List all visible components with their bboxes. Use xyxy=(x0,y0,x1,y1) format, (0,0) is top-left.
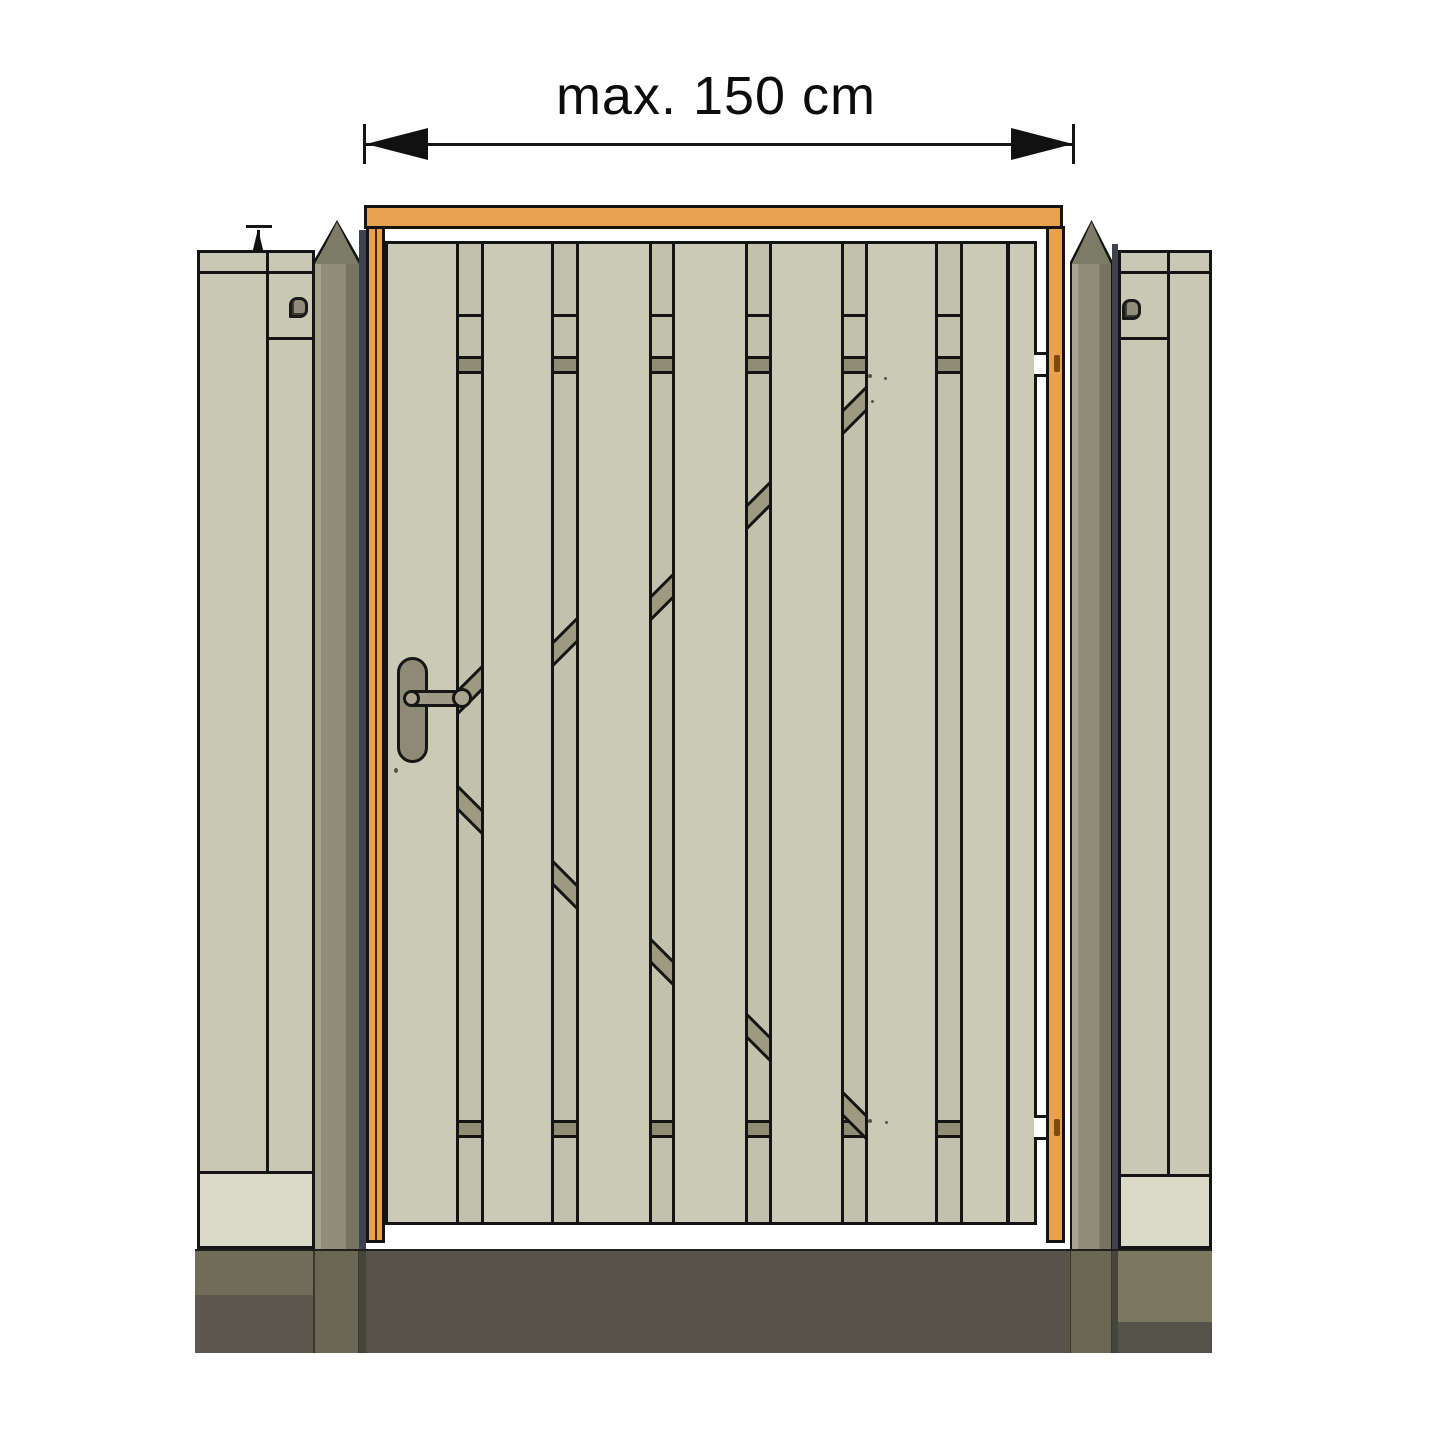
ground xyxy=(195,1249,1212,1353)
handle-lever-hub xyxy=(403,690,420,707)
back-rail-band xyxy=(938,356,960,374)
back-rail-band xyxy=(459,356,481,374)
handle-backplate xyxy=(397,657,428,763)
fence-left-top-rail-line xyxy=(200,271,312,274)
fence-right-board-divider xyxy=(1167,253,1170,1246)
back-rail-band xyxy=(554,356,576,374)
fence-left-bottom-board xyxy=(200,1174,312,1246)
back-plank-joint-line xyxy=(459,314,481,317)
post-left-cap xyxy=(315,222,359,264)
back-plank-joint-line xyxy=(938,314,960,317)
ground-left-bottom xyxy=(195,1295,313,1353)
gate-back-plank-gap xyxy=(649,244,675,1222)
diagonal-brace xyxy=(456,779,484,842)
gate-back-plank-gap xyxy=(935,244,963,1222)
gate-plank xyxy=(868,244,935,1222)
post-right-body xyxy=(1072,222,1111,1249)
fence-right-top-rail-line xyxy=(1121,271,1209,274)
width-dimension-line xyxy=(366,143,1073,146)
diagonal-brace xyxy=(841,379,868,442)
back-plank-joint-line xyxy=(844,314,865,317)
width-dimension-arrowhead-right xyxy=(1011,128,1073,160)
fence-right-hook-icon xyxy=(1122,299,1141,320)
back-rail-band xyxy=(652,356,672,374)
screw-dot xyxy=(868,1119,872,1123)
hinge-upper-bracket xyxy=(1034,352,1046,377)
ground-left-top xyxy=(195,1251,313,1295)
post-left-body xyxy=(315,222,359,1249)
back-rail-band xyxy=(748,356,769,374)
hinge-upper-pin xyxy=(1054,355,1060,372)
ground-center xyxy=(366,1251,1070,1353)
back-plank-joint-line xyxy=(748,314,769,317)
ground-steel-left xyxy=(359,1251,366,1353)
fence-panel-left xyxy=(197,250,315,1249)
fence-left-hook-icon xyxy=(289,297,308,318)
diagonal-brace xyxy=(551,611,579,674)
gate-back-plank-gap xyxy=(841,244,868,1222)
screw-dot xyxy=(871,400,874,403)
width-dimension-label: max. 150 cm xyxy=(466,66,966,126)
back-plank-joint-line xyxy=(652,314,672,317)
back-rail-band xyxy=(844,356,865,374)
frame-post-hinge-side xyxy=(366,226,385,1243)
diagonal-brace xyxy=(841,1085,868,1148)
ground-right-bottom xyxy=(1118,1322,1212,1353)
fence-panel-right xyxy=(1118,250,1212,1249)
height-dimension-tick-top xyxy=(246,225,272,228)
handle-lever-end-cap xyxy=(452,688,472,708)
hinge-lower-bracket xyxy=(1034,1115,1046,1140)
gate-back-plank-gap xyxy=(456,244,484,1222)
diagonal-brace xyxy=(745,474,772,537)
diagonal-brace xyxy=(649,566,675,629)
frame-top-rail xyxy=(364,205,1063,229)
gate-plank xyxy=(963,244,1006,1222)
diagonal-brace xyxy=(649,931,675,994)
fence-left-board-divider xyxy=(266,253,269,1246)
post-left xyxy=(313,220,361,1249)
screw-dot xyxy=(885,1121,888,1124)
steel-strip-right xyxy=(1112,244,1118,1249)
diagonal-brace xyxy=(551,854,579,917)
screw-dot xyxy=(884,377,887,380)
post-right xyxy=(1070,220,1113,1249)
back-rail-band xyxy=(554,1120,576,1138)
hinge-lower-pin xyxy=(1054,1119,1060,1136)
gate-plank xyxy=(484,244,551,1222)
back-rail-band xyxy=(748,1120,769,1138)
gate-back-plank-gap xyxy=(551,244,579,1222)
gate-plank xyxy=(1010,244,1034,1222)
ground-post-left xyxy=(313,1251,359,1353)
fence-left-mid-rail-line xyxy=(266,337,312,340)
fence-right-mid-rail-line xyxy=(1121,337,1167,340)
back-rail-band xyxy=(652,1120,672,1138)
back-rail-band xyxy=(459,1120,481,1138)
steel-strip-left xyxy=(359,230,366,1249)
fence-right-bottom-board xyxy=(1121,1177,1209,1246)
diagonal-brace xyxy=(745,1007,772,1070)
gate-leaf xyxy=(385,241,1037,1225)
gate-plank xyxy=(675,244,745,1222)
ground-post-right xyxy=(1070,1251,1112,1353)
back-rail-band xyxy=(938,1120,960,1138)
width-dimension-arrowhead-left xyxy=(366,128,428,160)
post-right-cap xyxy=(1072,222,1111,264)
gate-diagram: max. 150 cm max. 210 cm xyxy=(0,0,1440,1440)
screw-dot xyxy=(868,374,872,378)
gate-plank xyxy=(579,244,649,1222)
gate-back-plank-gap xyxy=(745,244,772,1222)
back-plank-joint-line xyxy=(554,314,576,317)
screw-dot xyxy=(394,768,398,773)
gate-plank xyxy=(772,244,841,1222)
ground-right-top xyxy=(1118,1251,1212,1322)
frame-post-latch-side xyxy=(1046,226,1065,1243)
